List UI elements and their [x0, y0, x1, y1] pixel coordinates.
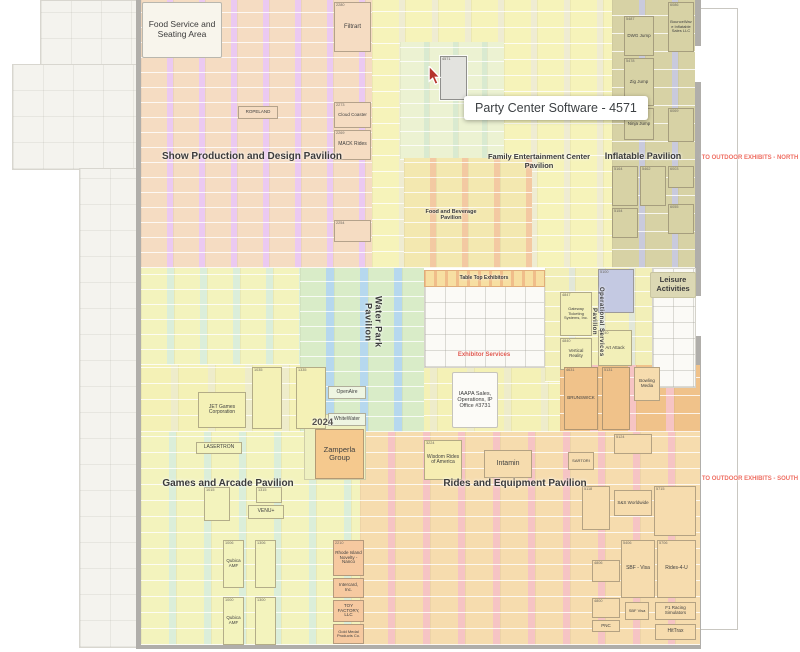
booth-number: 5706 — [659, 541, 667, 546]
booth-5124[interactable]: 5124 — [614, 434, 652, 454]
booth-sbf-visa[interactable]: SBF Visa — [625, 602, 649, 620]
booth-number: 1335 — [298, 368, 306, 373]
label-rides-equipment: Rides and Equipment Pavilion — [440, 478, 590, 490]
booth-lasertron[interactable]: LASERTRON — [196, 442, 242, 454]
booth-venu[interactable]: VENU+ — [248, 505, 284, 519]
booth-s-s-worldwide[interactable]: S&S Worldwide — [614, 490, 652, 516]
label-outdoor-south: TO OUTDOOR EXHIBITS - SOUTH — [700, 476, 800, 483]
map-layers: 2280Filtrart2273Cloud Coaster2269MACK Ri… — [0, 0, 800, 652]
booth-2273[interactable]: 2273Cloud Coaster — [334, 102, 371, 128]
booth-4847[interactable]: 4847Gateway Ticketing Systems, Inc. — [560, 292, 592, 336]
label-show-production-design: Show Production and Design Pavilion — [158, 151, 346, 163]
booth-number: 1300 — [257, 598, 265, 603]
booth-4806[interactable]: 4806 — [592, 560, 620, 582]
region-games-upper[interactable] — [141, 268, 300, 365]
label-operational-services: Operational Services Pavilion — [590, 280, 604, 364]
booth-number: 5462 — [642, 167, 650, 172]
booth-number: 5131 — [604, 368, 612, 373]
label-water-park: Water Park Pavilion — [363, 276, 384, 368]
building-outline — [701, 8, 737, 9]
booth-name: Ninja Jump — [627, 121, 652, 128]
booth-1035[interactable]: 1035 — [252, 367, 282, 429]
booth-name: Wisdom Rides of America — [425, 454, 461, 467]
booth-number: 2273 — [336, 103, 344, 108]
booth-6003[interactable]: 6003 — [668, 166, 694, 188]
booth-5164[interactable]: 5164 — [612, 166, 638, 206]
booth-1006[interactable]: 1006QubicaAMF — [223, 540, 244, 588]
booth-number: 1306 — [257, 541, 265, 546]
booth-number: 3224 — [426, 441, 434, 446]
booth-number: 5487 — [626, 17, 634, 22]
booth-tooltip: Party Center Software - 4571 — [464, 96, 648, 120]
label-games-arcade: Games and Arcade Pavilion — [158, 478, 298, 490]
booth-name: Rides-4-U — [664, 565, 689, 573]
booth-number: 4800 — [594, 599, 602, 604]
booth-number: 6003 — [670, 167, 678, 172]
booth-name: Gold Medal Products Co. — [334, 629, 363, 640]
booth-pnc[interactable]: PNC — [592, 620, 620, 632]
booth-gold-medal-products-co[interactable]: Gold Medal Products Co. — [333, 624, 364, 644]
booth-name: MACK Rides — [337, 141, 368, 149]
booth-1306[interactable]: 1306 — [255, 540, 276, 588]
booth-name: QubicaAMF — [224, 558, 243, 570]
booth-number: 4571 — [442, 57, 450, 62]
booth-number: 5164 — [614, 167, 622, 172]
booth-name: TOY FACTORY, LLC — [334, 603, 363, 620]
booth-name: S&S Worldwide — [616, 500, 649, 507]
booth-name: Filtrart — [343, 23, 362, 32]
booth-name: Intercard, Inc. — [334, 582, 363, 594]
booth-name: HitTrax — [667, 628, 685, 636]
booth-number: 4631 — [566, 368, 574, 373]
booth-6086[interactable]: 6086BounceWave Inflatable Sales LLC — [668, 2, 694, 52]
booth-name: Art Attack — [604, 345, 625, 352]
booth-sartori[interactable]: SARTORI — [568, 452, 594, 470]
booth-5406[interactable]: 5406SBF - Visa — [621, 540, 655, 598]
booth-number: 4806 — [594, 561, 602, 566]
booth-5118[interactable]: 5118 — [582, 486, 610, 530]
booth-name: Vertical Reality — [561, 348, 591, 360]
booth-name: OpenAire — [335, 389, 358, 397]
booth-5154[interactable]: 5154 — [612, 208, 638, 238]
label-family-entertainment: Family Entertainment Center Pavilion — [477, 153, 601, 170]
booth-name: PNC — [600, 623, 612, 630]
booth-2254[interactable]: 2254 — [334, 220, 371, 242]
booth-6069[interactable]: 6069 — [668, 108, 694, 142]
expo-floor-map[interactable]: 2280Filtrart2273Cloud Coaster2269MACK Ri… — [0, 0, 800, 652]
booth-4840[interactable]: 4840Vertical Reality — [560, 338, 592, 370]
booth-bowling-media[interactable]: Bowling Media — [634, 367, 660, 401]
booth-name: Zamperla Group — [316, 445, 363, 464]
booth-number: 4847 — [562, 293, 570, 298]
booth-4631[interactable]: 4631BRUNSWICK — [564, 367, 598, 430]
booth-number: 1035 — [254, 368, 262, 373]
booth-5462[interactable]: 5462 — [640, 166, 666, 206]
booth-number: 5154 — [614, 209, 622, 214]
booth-number: 5715 — [656, 487, 664, 492]
booth-name: Gateway Ticketing Systems, Inc. — [561, 306, 591, 321]
booth-name: BRUNSWICK — [566, 395, 596, 402]
booth-5706[interactable]: 5706Rides-4-U — [657, 540, 696, 598]
label-inflatable: Inflatable Pavilion — [604, 151, 682, 161]
booth-number: 5124 — [616, 435, 624, 440]
booth-2280[interactable]: 2280Filtrart — [334, 2, 371, 52]
booth-ropeland[interactable]: ROPELAND — [238, 106, 278, 119]
booth-openaire[interactable]: OpenAire — [328, 386, 366, 399]
booth-1000[interactable]: 1000QubicaAMF — [223, 597, 244, 645]
booth-number: 6086 — [670, 3, 678, 8]
booth-2210[interactable]: 2210Rhode Island Novelty - Nanco — [333, 540, 364, 576]
booth-name: Bowling Media — [635, 378, 659, 390]
booth-name: LASERTRON — [203, 444, 235, 452]
label-food-service: Food Service and Seating Area — [142, 2, 222, 58]
booth-4800[interactable]: 4800 — [592, 598, 620, 618]
booth-6055[interactable]: 6055 — [668, 204, 694, 234]
booth-name: Intamin — [496, 459, 521, 469]
booth-name: VENU+ — [257, 508, 276, 516]
label-food-beverage: Food and Beverage Pavilion — [416, 209, 486, 222]
booth-f1-racing-simulators[interactable]: F1 Racing Simulators — [655, 602, 696, 620]
booth-name: Cloud Coaster — [337, 112, 368, 119]
booth-5487[interactable]: 5487DWG Jump — [624, 16, 654, 56]
booth-intamin[interactable]: Intamin — [484, 450, 532, 478]
label-year: 2024 — [312, 418, 348, 429]
booth-number: 2210 — [335, 541, 343, 546]
booth-number: 2254 — [336, 221, 344, 226]
booth-5715[interactable]: 5715 — [654, 486, 696, 536]
booth-jet-games-corporation[interactable]: JET Games Corporation — [198, 392, 246, 428]
booth-1015[interactable]: 1015 — [204, 487, 230, 521]
booth-5131[interactable]: 5131 — [602, 367, 630, 430]
booth-number: 2280 — [336, 3, 344, 8]
booth-number: 5406 — [623, 541, 631, 546]
concourse-area — [40, 0, 138, 66]
booth-name: DWG Jump — [626, 33, 651, 40]
booth-toy-factory-llc[interactable]: TOY FACTORY, LLC — [333, 600, 364, 622]
label-iaapa-office: IAAPA Sales, Operations, IP Office #3731 — [452, 372, 498, 428]
booth-intercard-inc[interactable]: Intercard, Inc. — [333, 578, 364, 598]
label-table-top: Table Top Exhibitors — [428, 276, 540, 282]
booth-name: F1 Racing Simulators — [656, 605, 695, 617]
label-exhibitor-services: Exhibitor Services — [428, 352, 540, 359]
booth-number: 5478 — [626, 59, 634, 64]
booth-number: 2269 — [336, 131, 344, 136]
booth-zamperla-group[interactable]: Zamperla Group — [315, 429, 364, 479]
building-outline — [701, 629, 737, 630]
concourse-area — [12, 64, 138, 170]
booth-number: 1000 — [225, 598, 233, 603]
booth-tooltip-text: Party Center Software - 4571 — [475, 101, 637, 115]
label-leisure: Leisure Activities — [650, 272, 696, 298]
concourse-area — [79, 168, 138, 648]
booth-hittrax[interactable]: HitTrax — [655, 624, 696, 640]
booth-number: 6055 — [670, 205, 678, 210]
booth-name: SARTORI — [571, 458, 591, 464]
booth-3224[interactable]: 3224Wisdom Rides of America — [424, 440, 462, 480]
booth-number: 4840 — [562, 339, 570, 344]
booth-number: 5100 — [600, 270, 608, 275]
booth-number: 1006 — [225, 541, 233, 546]
booth-name: ROPELAND — [245, 109, 272, 116]
booth-name: Rhode Island Novelty - Nanco — [334, 550, 363, 567]
booth-name: BounceWave Inflatable Sales LLC — [669, 19, 693, 34]
label-outdoor-north: TO OUTDOOR EXHIBITS - NORTH — [700, 155, 800, 162]
booth-1300[interactable]: 1300 — [255, 597, 276, 645]
building-outline — [737, 8, 738, 630]
booth-number: 6069 — [670, 109, 678, 114]
booth-name: SBF - Visa — [625, 565, 651, 573]
booth-name: Zig Jump — [629, 79, 650, 86]
booth-name: JET Games Corporation — [199, 404, 245, 417]
cursor-arrow — [427, 66, 443, 86]
door-opening — [695, 46, 701, 82]
booth-4571[interactable]: 4571 — [440, 56, 467, 100]
booth-name: SBF Visa — [628, 608, 647, 614]
booth-name: QubicaAMF — [224, 615, 243, 627]
